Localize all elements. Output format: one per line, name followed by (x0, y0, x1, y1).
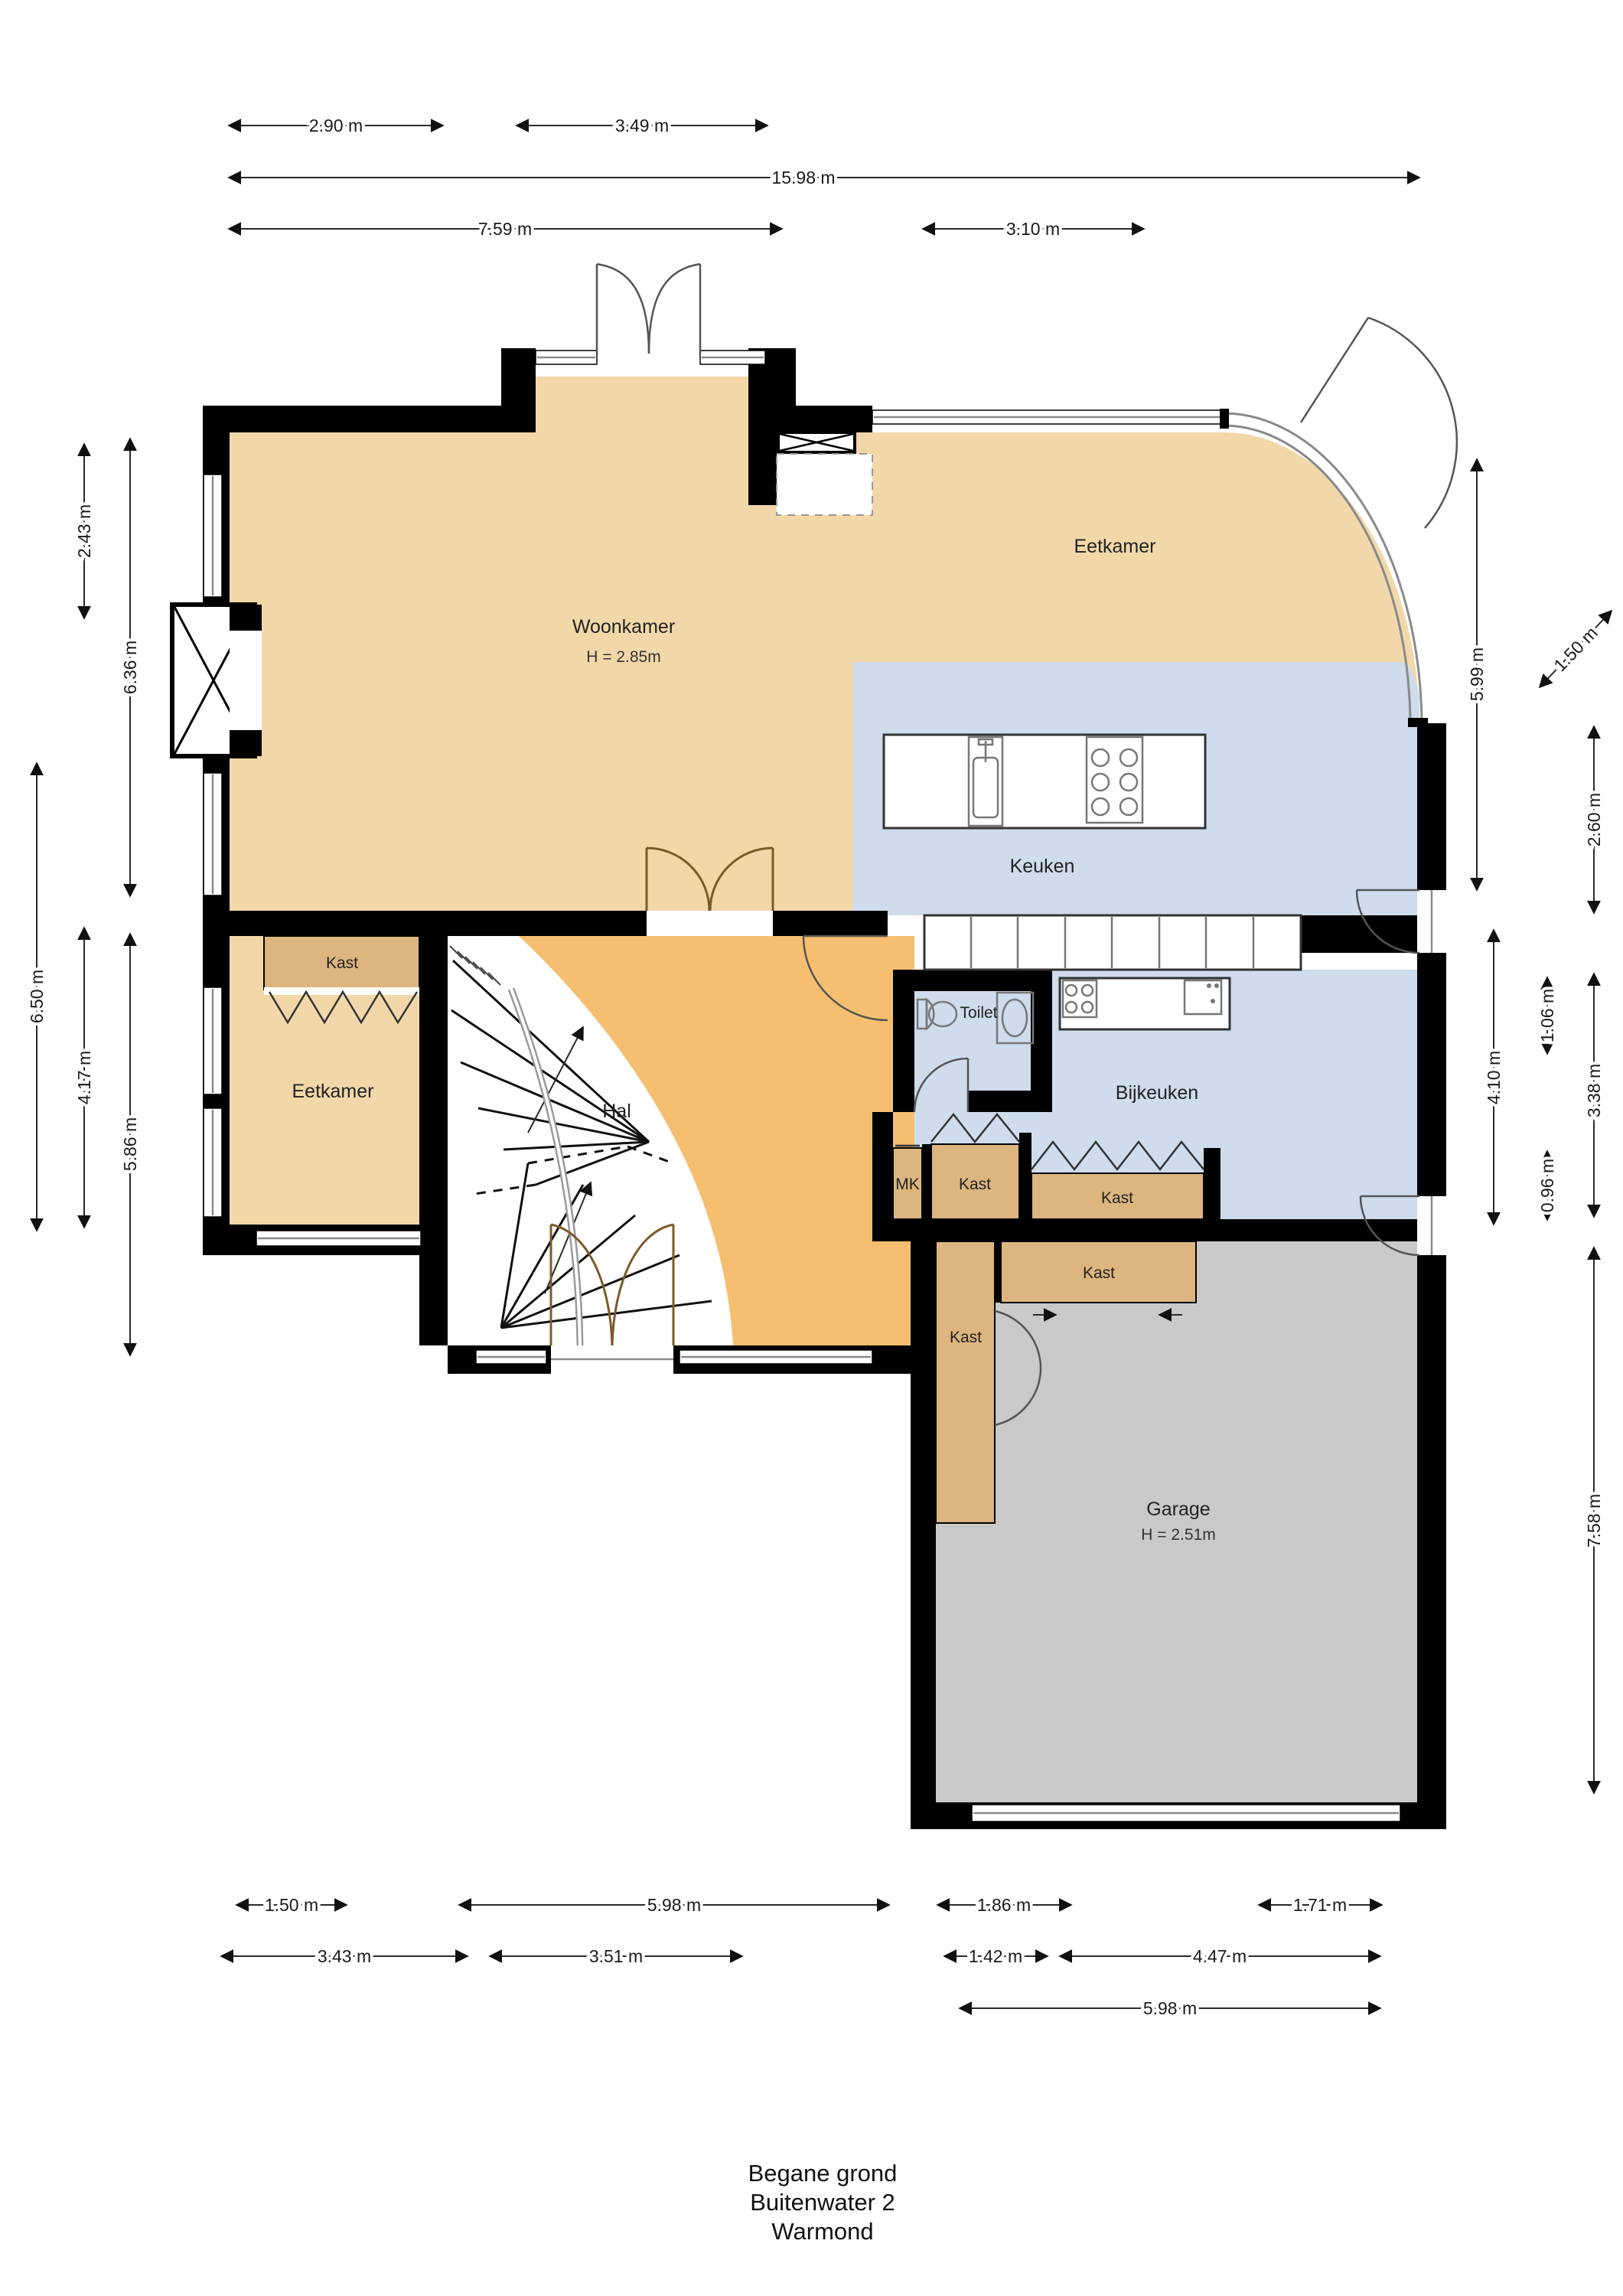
garage-door (972, 1805, 1400, 1821)
label-garage: Garage (1146, 1499, 1210, 1520)
dim-top-3: 7.59 m (478, 219, 532, 239)
kitchen-cabinet-row (924, 915, 1301, 970)
dim-bottom-0: 1.50 m (265, 1895, 318, 1915)
label-bijkeuken: Bijkeuken (1116, 1082, 1198, 1104)
dim-top-2: 15.98 m (771, 168, 835, 188)
kitchen-island (884, 735, 1205, 828)
dim-bottom-8: 5.98 m (1143, 1998, 1197, 2018)
dim-left-4: 5.86 m (120, 1117, 140, 1171)
dim-bottom-1: 5.98 m (647, 1895, 701, 1915)
title-address: Buitenwater 2 (750, 2189, 895, 2216)
label-keuken: Keuken (1010, 856, 1075, 877)
dim-top-0: 2.90 m (309, 116, 363, 135)
dim-bottom-4: 3.43 m (318, 1946, 371, 1966)
dim-left-3: 4.17 m (74, 1051, 94, 1104)
floor-areas (230, 377, 1419, 1802)
dim-bottom-6: 1.42 m (969, 1946, 1022, 1966)
window-bump (536, 351, 765, 364)
dim-right-6: 0.96 m (1537, 1159, 1557, 1212)
dim-left-1: 6.36 m (120, 641, 140, 694)
label-kast-garage: Kast (1083, 1264, 1115, 1282)
label-kast-garage-side: Kast (950, 1329, 982, 1346)
dim-right-1: 5.99 m (1467, 647, 1487, 701)
dim-left-2: 6.50 m (27, 970, 47, 1023)
floor-plan-page: 2.90 m 3.49 m 15.98 m 7.59 m 3.10 m 2.43… (0, 0, 1623, 2296)
bijkeuken-counter (1060, 978, 1230, 1029)
dim-top-1: 3.49 m (615, 116, 669, 135)
dim-right-0: 1.50 m (1550, 623, 1602, 676)
dim-right-3: 1.06 m (1537, 989, 1557, 1042)
label-woonkamer: Woonkamer (572, 616, 675, 638)
closet-garage-side (936, 1241, 995, 1523)
dim-bottom-2: 1.86 m (977, 1895, 1031, 1915)
dim-bottom-7: 4.47 m (1193, 1946, 1247, 1966)
label-kast-bijkeuken: Kast (1101, 1189, 1133, 1207)
label-kast-eetkamer: Kast (326, 954, 358, 972)
title-city: Warmond (771, 2218, 873, 2245)
dim-right-7: 7.58 m (1584, 1494, 1604, 1548)
window-eetkamer-bottom (256, 1231, 421, 1246)
label-toilet: Toilet (960, 1004, 997, 1022)
dim-right-2: 2.60 m (1584, 793, 1604, 846)
plan-title: Begane grond Buitenwater 2 Warmond (748, 2160, 898, 2245)
dim-right-4: 4.10 m (1484, 1051, 1504, 1104)
label-mk: MK (895, 1176, 920, 1193)
label-garage-height: H = 2.51m (1141, 1526, 1215, 1544)
label-kast-hal: Kast (959, 1176, 991, 1193)
dim-left-0: 2.43 m (74, 504, 94, 558)
dim-right-5: 3.38 m (1584, 1064, 1604, 1117)
label-hal: Hal (602, 1101, 631, 1122)
fireplace (172, 605, 262, 756)
dim-top-4: 3.10 m (1006, 219, 1060, 239)
label-eetkamer-top: Eetkamer (1074, 536, 1156, 557)
dim-bottom-3: 1.71 m (1293, 1895, 1347, 1915)
label-woonkamer-height: H = 2.85m (586, 648, 660, 666)
dim-bottom-5: 3.51 m (589, 1946, 643, 1966)
title-floor: Begane grond (748, 2160, 898, 2187)
door-bump-double (597, 264, 700, 354)
floor-garage (936, 1241, 1419, 1802)
label-eetkamer-left: Eetkamer (292, 1081, 374, 1102)
floor-plan-drawing: 2.90 m 3.49 m 15.98 m 7.59 m 3.10 m 2.43… (0, 0, 1623, 2296)
